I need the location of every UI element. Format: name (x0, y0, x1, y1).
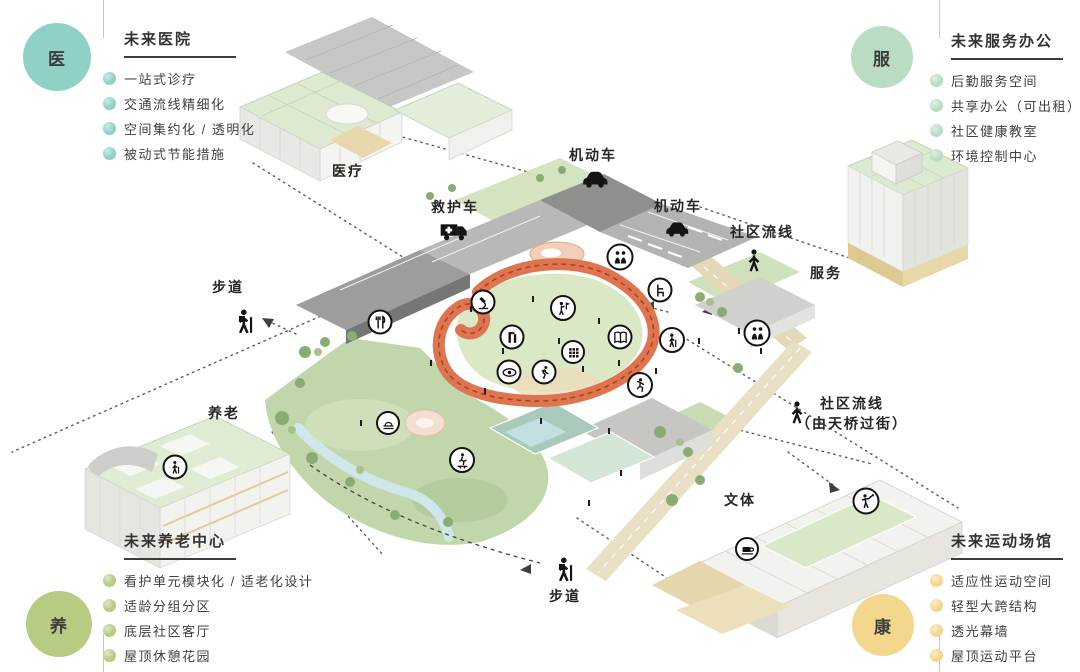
microscope-icon (471, 290, 496, 315)
flag-person-icon (550, 295, 576, 321)
skater-icon (449, 447, 475, 473)
book-icon (608, 325, 633, 350)
label-footpath-bottom: 步道 (549, 587, 581, 607)
diagram-page: { "palette": { "medical_teal": "#8fd1c5"… (0, 0, 1080, 672)
coffee-icon (735, 537, 759, 561)
walking-person-icon (784, 400, 811, 427)
chair-icon (648, 278, 673, 303)
label-elderly-care: 养老 (208, 404, 240, 424)
label-community-flow-bridge: 社区流线（由天桥过街） (796, 394, 908, 433)
ambulance-icon (438, 213, 470, 245)
car-icon (580, 163, 610, 193)
elderly-cane-icon (163, 455, 188, 480)
hiker-icon (231, 308, 260, 337)
label-community-flow: 社区流线 (730, 223, 794, 243)
walking-person-icon (741, 248, 768, 275)
reception-icon (607, 244, 634, 271)
table-tennis-icon (853, 488, 880, 515)
dancer-icon (627, 372, 653, 398)
amphitheater-icon (376, 411, 400, 435)
elderly-cane-icon (659, 327, 685, 353)
eye-icon (497, 360, 522, 385)
label-culture-sports: 文体 (724, 491, 756, 511)
label-footpath-left: 步道 (212, 278, 244, 298)
car-icon (664, 215, 691, 242)
game-grid-icon (561, 340, 585, 364)
fitness-icon (500, 325, 525, 350)
label-service: 服务 (810, 264, 842, 284)
dining-icon (368, 310, 393, 335)
label-medical: 医疗 (332, 162, 364, 182)
reception-icon (744, 320, 771, 347)
hiker-icon (551, 556, 580, 585)
runner-icon (532, 360, 557, 385)
scene-annotation-layer: 医疗机动车救护车机动车社区流线服务步道养老社区流线（由天桥过街）文体步道 (0, 0, 1080, 672)
